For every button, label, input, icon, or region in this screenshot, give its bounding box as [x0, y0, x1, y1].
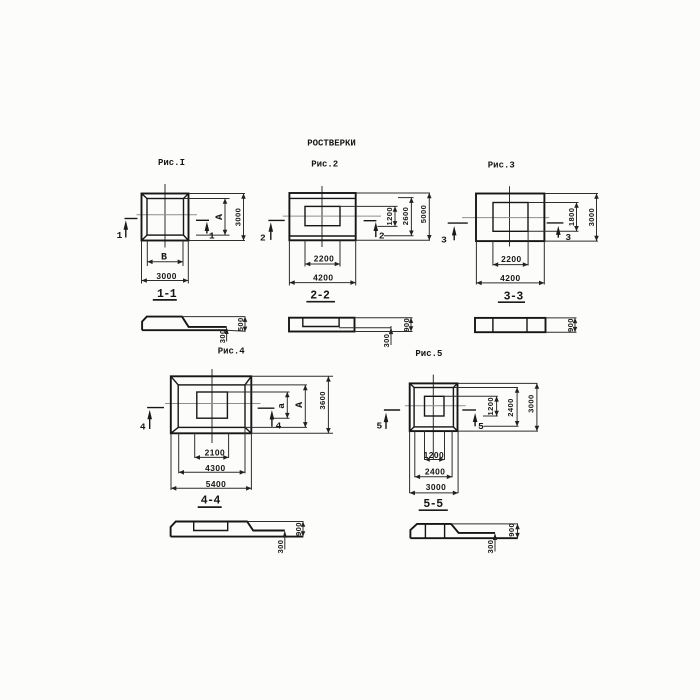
svg-text:А: А: [295, 402, 306, 408]
svg-text:а: а: [276, 403, 287, 409]
svg-text:1: 1: [117, 230, 123, 241]
svg-text:4200: 4200: [313, 273, 333, 283]
svg-text:500: 500: [236, 317, 245, 331]
svg-text:3600: 3600: [318, 391, 327, 410]
svg-text:2100: 2100: [205, 448, 225, 458]
svg-text:1: 1: [209, 230, 215, 241]
svg-text:300: 300: [218, 329, 227, 343]
svg-text:900: 900: [566, 318, 575, 332]
svg-text:В: В: [161, 253, 167, 264]
svg-text:РОСТВЕРКИ: РОСТВЕРКИ: [307, 139, 356, 149]
svg-text:Рис.3: Рис.3: [488, 161, 515, 171]
svg-text:2-2: 2-2: [310, 289, 330, 302]
svg-text:3-3: 3-3: [504, 290, 524, 303]
svg-text:2200: 2200: [314, 253, 334, 263]
svg-text:2600: 2600: [401, 207, 410, 226]
svg-text:1800: 1800: [567, 208, 576, 227]
svg-text:2400: 2400: [506, 398, 515, 417]
svg-text:3000: 3000: [527, 394, 536, 413]
svg-text:4200: 4200: [500, 273, 520, 283]
svg-text:1200: 1200: [385, 207, 394, 226]
svg-text:5-5: 5-5: [423, 498, 443, 511]
svg-text:900: 900: [402, 318, 411, 332]
svg-text:900: 900: [294, 522, 303, 536]
svg-text:5400: 5400: [206, 479, 226, 489]
svg-text:3000: 3000: [587, 208, 596, 227]
svg-text:300: 300: [276, 540, 285, 554]
svg-text:Рис.5: Рис.5: [415, 349, 442, 359]
svg-text:300: 300: [382, 334, 391, 348]
svg-text:Рис.4: Рис.4: [218, 347, 246, 357]
svg-text:1-1: 1-1: [157, 288, 177, 301]
svg-text:4: 4: [276, 421, 282, 432]
svg-text:1200: 1200: [424, 450, 444, 460]
svg-text:2400: 2400: [425, 467, 445, 477]
svg-text:300: 300: [486, 540, 495, 554]
svg-text:5: 5: [377, 421, 383, 432]
svg-text:3000: 3000: [426, 482, 446, 492]
svg-text:4: 4: [140, 421, 146, 432]
svg-text:3000: 3000: [234, 208, 243, 227]
svg-text:А: А: [215, 214, 226, 220]
svg-text:Рис.2: Рис.2: [311, 160, 338, 170]
svg-text:2: 2: [260, 232, 266, 243]
svg-text:1200: 1200: [486, 397, 495, 416]
svg-text:5: 5: [478, 421, 484, 432]
svg-text:2: 2: [379, 231, 385, 242]
svg-text:5000: 5000: [419, 205, 428, 224]
svg-text:3000: 3000: [156, 271, 176, 281]
svg-text:2200: 2200: [501, 254, 521, 264]
svg-text:4300: 4300: [205, 463, 225, 473]
svg-text:3: 3: [441, 234, 447, 245]
svg-text:3: 3: [565, 232, 571, 243]
svg-text:4-4: 4-4: [201, 494, 221, 507]
svg-text:Рис.I: Рис.I: [158, 158, 185, 168]
svg-text:900: 900: [507, 523, 516, 537]
